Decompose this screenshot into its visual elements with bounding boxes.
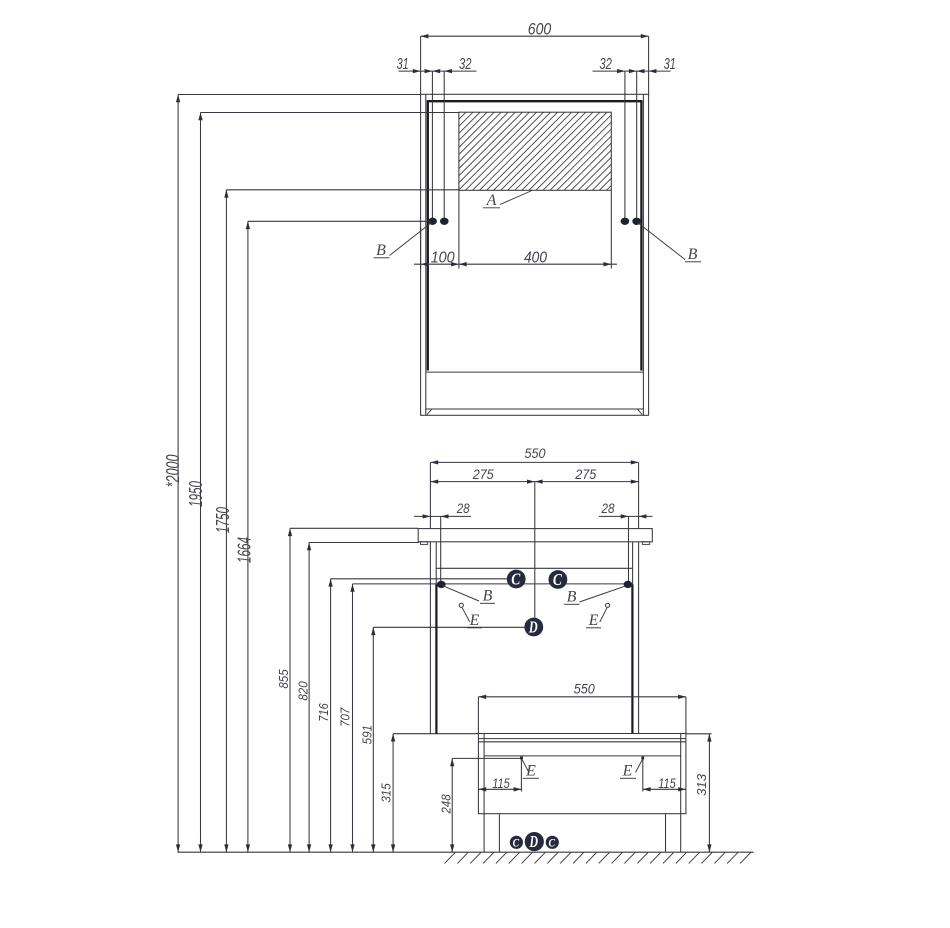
svg-text:550: 550	[574, 680, 595, 696]
svg-text:1950: 1950	[186, 481, 206, 507]
svg-text:B: B	[688, 246, 698, 263]
svg-text:A: A	[486, 192, 497, 209]
svg-text:313: 313	[694, 774, 709, 796]
svg-text:855: 855	[276, 669, 291, 689]
svg-text:707: 707	[337, 707, 352, 727]
svg-text:31: 31	[664, 56, 676, 73]
svg-text:550: 550	[525, 446, 547, 461]
svg-text:716: 716	[316, 702, 331, 721]
svg-text:B: B	[567, 589, 577, 606]
svg-text:E: E	[588, 612, 599, 629]
svg-text:E: E	[525, 763, 536, 780]
svg-text:275: 275	[472, 467, 494, 482]
svg-text:B: B	[483, 588, 493, 605]
svg-text:E: E	[469, 612, 480, 629]
svg-text:315: 315	[379, 783, 394, 803]
svg-text:28: 28	[456, 501, 470, 516]
svg-text:1750: 1750	[213, 507, 233, 533]
svg-text:820: 820	[295, 681, 310, 701]
svg-text:275: 275	[574, 467, 596, 482]
svg-text:248: 248	[438, 794, 453, 815]
svg-text:C: C	[549, 835, 556, 849]
svg-text:32: 32	[599, 56, 612, 73]
svg-text:D: D	[528, 618, 538, 637]
svg-text:400: 400	[524, 249, 547, 266]
svg-text:C: C	[513, 835, 520, 849]
svg-text:115: 115	[658, 776, 676, 791]
svg-text:B: B	[376, 242, 386, 259]
svg-text:600: 600	[528, 20, 552, 39]
svg-text:28: 28	[601, 501, 615, 516]
svg-text:32: 32	[459, 56, 472, 73]
svg-text:31: 31	[397, 56, 409, 73]
svg-text:1664: 1664	[234, 537, 254, 563]
svg-text:100: 100	[431, 249, 455, 266]
svg-text:E: E	[622, 763, 633, 780]
svg-text:591: 591	[360, 725, 375, 744]
svg-text:C: C	[511, 570, 521, 589]
svg-text:115: 115	[492, 776, 510, 791]
svg-text:D: D	[529, 832, 538, 851]
svg-text:*2000: *2000	[163, 455, 183, 488]
svg-text:C: C	[553, 570, 563, 589]
